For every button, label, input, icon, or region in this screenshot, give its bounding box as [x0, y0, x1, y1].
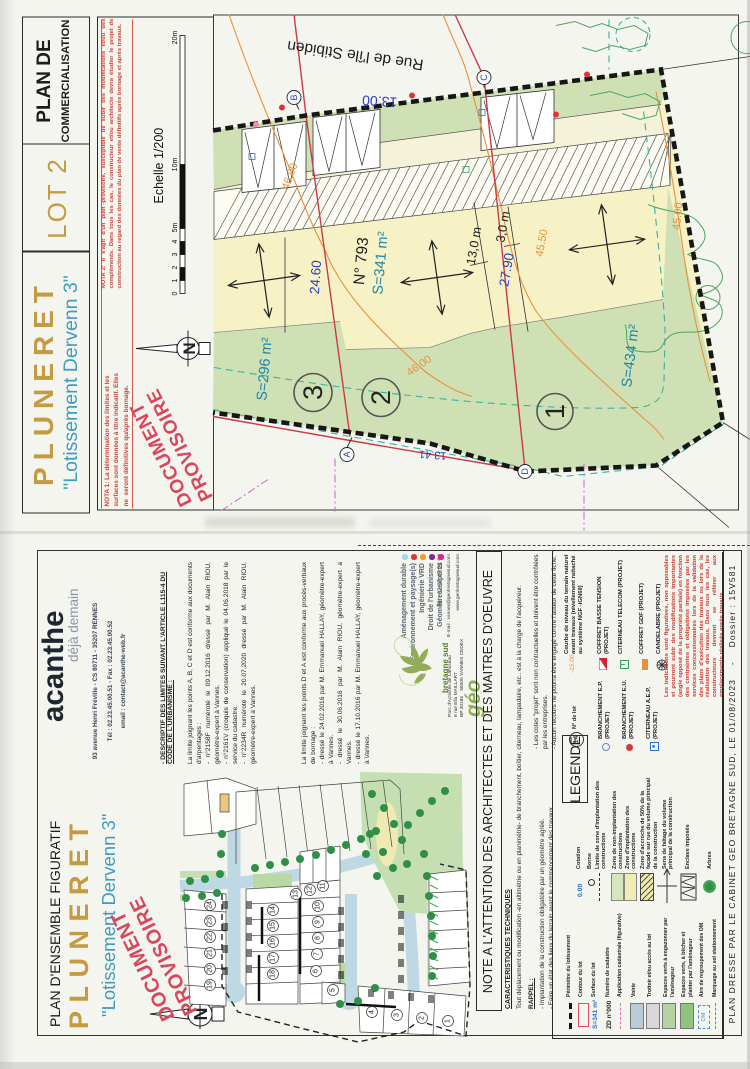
- svg-text:18: 18: [270, 970, 277, 978]
- svg-text:2: 2: [172, 265, 179, 269]
- svg-text:6: 6: [313, 969, 320, 973]
- svg-text:2: 2: [366, 390, 396, 405]
- svg-text:9: 9: [315, 920, 322, 924]
- svg-text:0: 0: [172, 291, 179, 295]
- svg-text:Rue de l'île Stibiden: Rue de l'île Stibiden: [286, 37, 424, 73]
- svg-text:8: 8: [315, 936, 322, 940]
- svg-text:12: 12: [307, 886, 314, 894]
- svg-text:C: C: [479, 74, 489, 81]
- svg-text:5: 5: [330, 988, 337, 992]
- svg-text:13.41: 13.41: [419, 448, 447, 462]
- svg-text:1: 1: [445, 1019, 452, 1023]
- svg-text:4: 4: [369, 1010, 376, 1014]
- svg-text:16: 16: [270, 938, 277, 946]
- svg-text:20m: 20m: [172, 31, 179, 45]
- svg-text:A: A: [342, 451, 352, 457]
- svg-text:B: B: [289, 94, 299, 100]
- svg-text:20: 20: [207, 965, 214, 973]
- svg-text:1: 1: [172, 278, 179, 282]
- svg-text:2: 2: [419, 1016, 426, 1020]
- svg-text:24: 24: [207, 901, 214, 909]
- svg-text:3: 3: [172, 252, 179, 256]
- svg-text:10: 10: [315, 902, 322, 910]
- svg-text:7: 7: [314, 952, 321, 956]
- svg-text:22: 22: [207, 933, 214, 941]
- svg-text:14: 14: [270, 906, 277, 914]
- svg-text:N: N: [180, 342, 199, 354]
- svg-text:3: 3: [298, 385, 328, 400]
- svg-text:17: 17: [270, 954, 277, 962]
- svg-text:3: 3: [394, 1013, 401, 1017]
- svg-text:21: 21: [207, 949, 214, 957]
- svg-text:1: 1: [540, 404, 570, 419]
- svg-text:13.00: 13.00: [361, 92, 397, 110]
- svg-text:19: 19: [207, 981, 214, 989]
- svg-text:D: D: [520, 468, 530, 475]
- svg-text:23: 23: [207, 917, 214, 925]
- svg-text:11: 11: [320, 882, 327, 889]
- svg-text:5m: 5m: [172, 222, 179, 232]
- svg-text:24.60: 24.60: [307, 260, 324, 295]
- svg-text:45.00: 45.00: [671, 202, 685, 230]
- svg-text:15: 15: [270, 922, 277, 930]
- svg-text:13: 13: [293, 890, 300, 898]
- svg-text:10m: 10m: [172, 158, 179, 172]
- svg-text:4: 4: [172, 239, 179, 243]
